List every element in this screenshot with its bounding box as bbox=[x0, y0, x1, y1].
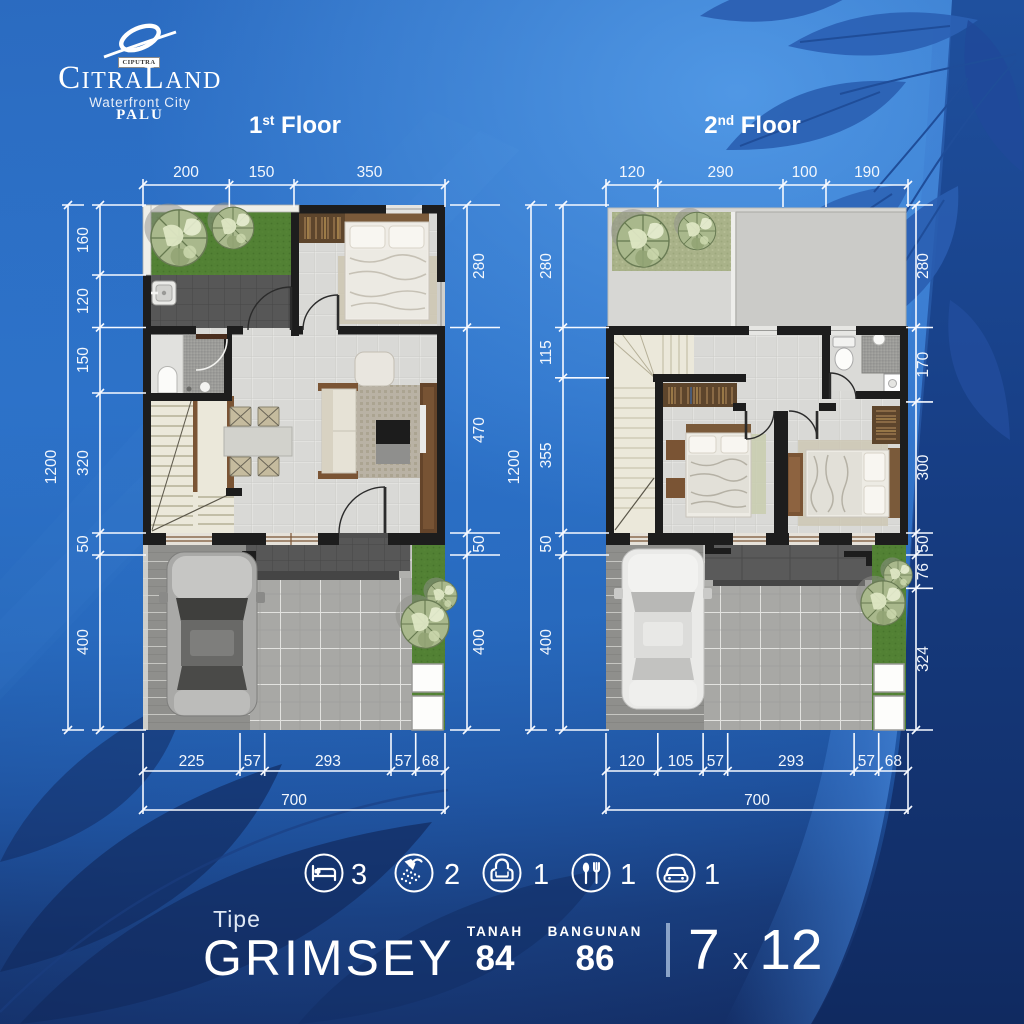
svg-text:400: 400 bbox=[75, 629, 92, 655]
svg-text:68: 68 bbox=[422, 753, 439, 770]
svg-text:280: 280 bbox=[915, 253, 932, 279]
svg-text:57: 57 bbox=[858, 753, 875, 770]
svg-text:50: 50 bbox=[538, 535, 555, 553]
svg-text:293: 293 bbox=[778, 753, 804, 770]
svg-text:300: 300 bbox=[915, 454, 932, 480]
svg-text:1200: 1200 bbox=[506, 449, 523, 484]
svg-text:400: 400 bbox=[471, 629, 488, 655]
svg-text:190: 190 bbox=[854, 164, 880, 181]
svg-text:57: 57 bbox=[395, 753, 412, 770]
svg-text:355: 355 bbox=[538, 442, 555, 468]
svg-text:1: 1 bbox=[704, 859, 720, 891]
svg-text:290: 290 bbox=[707, 164, 733, 181]
svg-text:105: 105 bbox=[668, 753, 694, 770]
svg-text:50: 50 bbox=[471, 535, 488, 553]
svg-text:115: 115 bbox=[538, 340, 555, 365]
svg-text:100: 100 bbox=[792, 164, 818, 181]
svg-text:76: 76 bbox=[915, 563, 932, 580]
svg-text:324: 324 bbox=[915, 646, 932, 672]
svg-text:1: 1 bbox=[620, 859, 636, 891]
svg-text:68: 68 bbox=[885, 753, 902, 770]
svg-text:57: 57 bbox=[244, 753, 261, 770]
svg-text:400: 400 bbox=[538, 629, 555, 655]
svg-text:160: 160 bbox=[75, 227, 92, 253]
svg-text:170: 170 bbox=[915, 351, 932, 377]
svg-text:700: 700 bbox=[281, 792, 307, 809]
svg-text:3: 3 bbox=[351, 859, 367, 891]
svg-text:50: 50 bbox=[915, 535, 932, 553]
svg-text:2: 2 bbox=[444, 859, 460, 891]
svg-text:1200: 1200 bbox=[43, 449, 60, 484]
svg-text:320: 320 bbox=[75, 450, 92, 476]
svg-text:120: 120 bbox=[619, 753, 645, 770]
svg-text:293: 293 bbox=[315, 753, 341, 770]
svg-text:150: 150 bbox=[249, 164, 275, 181]
svg-text:280: 280 bbox=[471, 253, 488, 279]
svg-text:150: 150 bbox=[75, 347, 92, 373]
svg-text:470: 470 bbox=[471, 417, 488, 443]
svg-text:120: 120 bbox=[619, 164, 645, 181]
svg-text:1: 1 bbox=[533, 859, 549, 891]
svg-text:280: 280 bbox=[538, 253, 555, 279]
svg-text:57: 57 bbox=[707, 753, 724, 770]
svg-text:700: 700 bbox=[744, 792, 770, 809]
svg-text:200: 200 bbox=[173, 164, 199, 181]
svg-text:350: 350 bbox=[357, 164, 383, 181]
svg-text:120: 120 bbox=[75, 288, 92, 314]
svg-text:50: 50 bbox=[75, 535, 92, 553]
svg-text:225: 225 bbox=[179, 753, 205, 770]
